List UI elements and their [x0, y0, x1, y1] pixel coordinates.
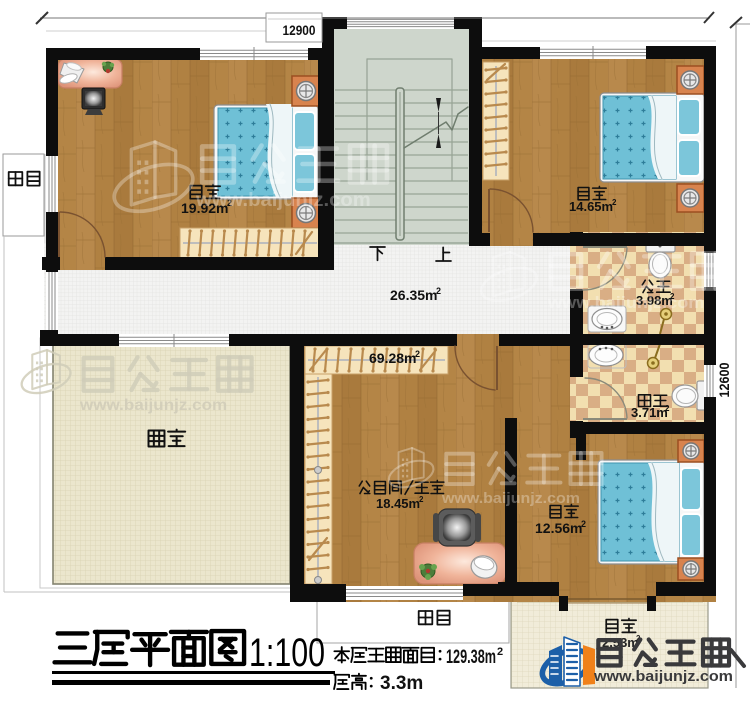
svg-text:www.baijunjz.com: www.baijunjz.com [441, 490, 580, 507]
svg-text:www.baijunjz.com: www.baijunjz.com [195, 190, 371, 211]
svg-text:www.baijunjz.com: www.baijunjz.com [547, 293, 704, 312]
svg-text:www.baijunjz.com: www.baijunjz.com [79, 397, 227, 414]
svg-text:12900: 12900 [283, 23, 316, 38]
svg-text:12600: 12600 [716, 362, 732, 397]
svg-text:26.35m: 26.35m [390, 287, 437, 303]
svg-text:2: 2 [612, 198, 617, 207]
svg-text:2: 2 [415, 349, 420, 359]
svg-text:2: 2 [419, 495, 424, 504]
svg-text:1:100: 1:100 [249, 631, 325, 675]
svg-text:2: 2 [665, 404, 670, 413]
svg-text:2: 2 [581, 519, 586, 529]
svg-text:14.65m: 14.65m [569, 199, 613, 214]
svg-text:129.38m: 129.38m [446, 647, 496, 668]
svg-text:69.28m: 69.28m [369, 350, 416, 366]
svg-text:12.56m: 12.56m [535, 520, 582, 536]
svg-text:2: 2 [436, 286, 441, 296]
svg-text:2: 2 [497, 646, 503, 658]
svg-text:3.3m: 3.3m [380, 673, 423, 694]
svg-text:18.45m: 18.45m [376, 496, 420, 511]
svg-text:3.71m: 3.71m [631, 405, 668, 420]
svg-text:www.baijunjz.com: www.baijunjz.com [593, 669, 733, 685]
